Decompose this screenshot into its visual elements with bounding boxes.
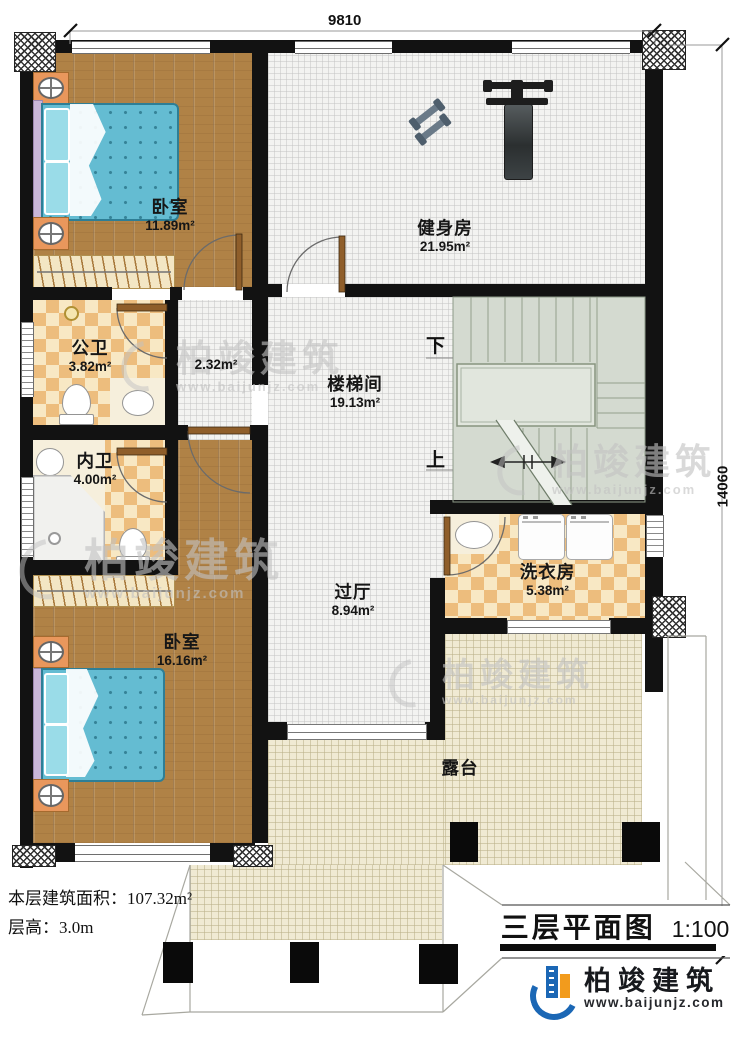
floor-plan: 柏竣建筑 www.baijunjz.com 柏竣建筑 www.baijunjz.… [0,0,750,1038]
title-underline [500,944,716,951]
logo-name: 柏竣建筑 [584,968,725,995]
stair-down-label: 下 [426,331,445,358]
room-area: 4.00m² [53,472,137,488]
dimension-width: 9810 [328,12,361,29]
room-area: 5.38m² [490,583,605,599]
room-label-stairwell: 楼梯间 19.13m² [295,374,415,412]
room-name: 洗衣房 [490,562,605,583]
dimension-height: 14060 [715,464,732,510]
room-label-gym: 健身房 21.95m² [375,218,515,256]
room-name: 露台 [430,758,490,779]
floor-height-info: 层高：3.0m [8,913,93,938]
room-area: 3.82m² [48,359,132,375]
room-name: 卧室 [100,197,240,218]
terrace-column [290,942,319,983]
gym-door-arc [287,237,342,292]
terrace-parapet [668,636,706,900]
bedroom2-door-arc [188,431,250,493]
plan-title: 三层平面图 [501,906,656,946]
terrace-column [622,822,660,862]
company-logo: 柏竣建筑 www.baijunjz.com [530,964,725,1014]
door-leaf [188,427,250,434]
floor-area-info: 本层建筑面积：107.32m² [8,884,192,909]
room-label-public-bath: 公卫 3.82m² [48,338,132,376]
bedroom1-door-arc [184,235,239,290]
room-name: 过厅 [293,582,413,603]
room-label-hall: 过厅 8.94m² [293,582,413,620]
room-label-bedroom1: 卧室 11.89m² [100,197,240,235]
stair-up-label: 上 [426,445,445,472]
door-leaf [444,517,450,575]
plan-scale: 1:100 [672,916,730,943]
room-name: 内卫 [53,451,137,472]
door-leaf [339,236,345,292]
stair-landing [457,364,595,426]
terrace-column [419,944,458,984]
room-area: 8.94m² [293,603,413,619]
room-label-private-bath: 内卫 4.00m² [53,451,137,489]
door-leaf [236,234,242,290]
room-label-terrace: 露台 [430,758,490,779]
room-name: 楼梯间 [295,374,415,395]
room-area: 11.89m² [100,218,240,234]
room-label-bedroom2: 卧室 16.16m² [112,632,252,670]
dimension-lines [70,31,722,958]
terrace-column [450,822,478,862]
room-area: 19.13m² [295,395,415,411]
room-area: 16.16m² [112,653,252,669]
room-name: 公卫 [48,338,132,359]
room-name: 卧室 [112,632,252,653]
room-label-corridor: 2.32m² [178,357,254,373]
room-area: 2.32m² [178,357,254,373]
terrace-column [163,942,193,983]
door-leaf [117,304,167,311]
room-area: 21.95m² [375,239,515,255]
logo-website: www.baijunjz.com [584,995,725,1010]
logo-building-icon [530,964,576,1014]
room-name: 健身房 [375,218,515,239]
room-label-laundry: 洗衣房 5.38m² [490,562,605,600]
